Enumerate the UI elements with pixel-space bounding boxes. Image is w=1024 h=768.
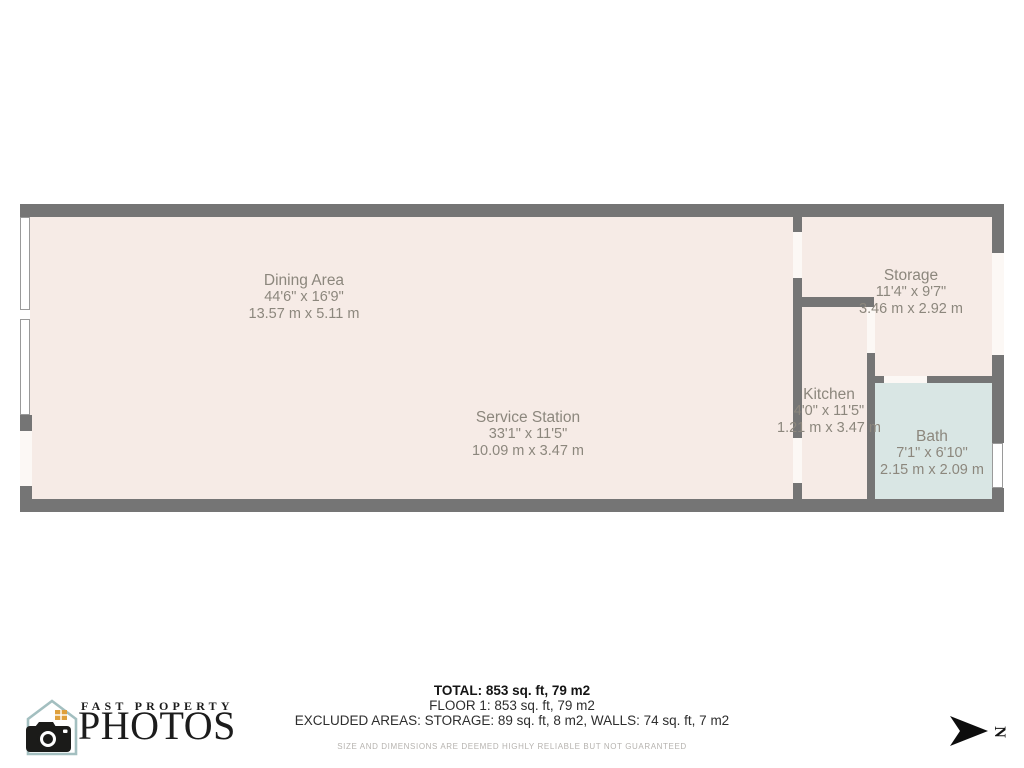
wall-segment [793,483,802,499]
wall-segment [927,376,992,383]
floorplan-page: Dining Area 44'6" x 16'9" 13.57 m x 5.11… [0,0,1024,768]
room-size-metric: 10.09 m x 3.47 m [428,443,628,460]
fast-property-photos-logo: FAST PROPERTY PHOTOS [25,697,240,757]
room-label-service-station: Service Station 33'1" x 11'5" 10.09 m x … [428,409,628,460]
room-name: Service Station [428,409,628,426]
room-size-imperial: 33'1" x 11'5" [428,426,628,443]
room-label-storage: Storage 11'4" x 9'7" 3.46 m x 2.92 m [811,267,1011,318]
wall-segment [875,376,884,383]
north-compass: N [948,714,1012,750]
wall-segment [20,415,32,431]
room-label-dining-area: Dining Area 44'6" x 16'9" 13.57 m x 5.11… [204,272,404,323]
door-opening [793,232,802,278]
door-opening [793,438,802,483]
logo-text-photos: PHOTOS [78,704,236,748]
room-size-imperial: 44'6" x 16'9" [204,289,404,306]
floorplan: Dining Area 44'6" x 16'9" 13.57 m x 5.11… [20,204,1004,512]
room-name: Storage [811,267,1011,284]
north-arrow-icon [948,714,990,750]
window-divider [20,309,30,320]
total-area-text: TOTAL: 853 sq. ft, 79 m2 [0,683,1024,698]
room-size-metric: 13.57 m x 5.11 m [204,306,404,323]
room-name: Dining Area [204,272,404,289]
room-size-imperial: 7'1" x 6'10" [852,445,1012,462]
room-label-bath: Bath 7'1" x 6'10" 2.15 m x 2.09 m [852,428,1012,479]
north-letter: N [990,726,1008,738]
room-size-imperial: 11'4" x 9'7" [811,284,1011,301]
room-size-metric: 3.46 m x 2.92 m [811,301,1011,318]
door-opening [20,431,32,486]
room-name: Kitchen [749,386,909,403]
room-size-metric: 2.15 m x 2.09 m [852,462,1012,479]
door-opening [884,376,927,383]
room-name: Bath [852,428,1012,445]
wall-segment [992,204,1004,253]
wall-segment [20,204,1004,217]
wall-segment [793,217,802,232]
wall-segment [20,486,32,512]
wall-segment [20,499,1004,512]
house-camera-icon [25,697,79,757]
wall-segment [992,488,1004,512]
room-size-imperial: 4'0" x 11'5" [749,403,909,420]
